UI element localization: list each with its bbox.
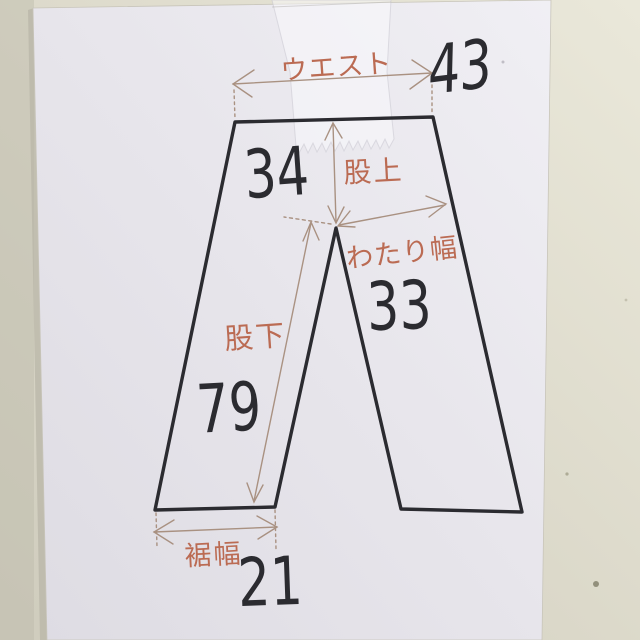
inseam-value: 79 xyxy=(195,369,264,450)
sketch-canvas: ウエスト 股上 わたり幅 股下 裾幅 43 34 33 79 21 xyxy=(0,0,640,640)
hem-width-value: 21 xyxy=(237,543,304,623)
desk-speck xyxy=(565,472,568,475)
desk-speck xyxy=(593,581,599,587)
rise-label: 股上 xyxy=(343,153,405,189)
inseam-label: 股下 xyxy=(223,318,287,356)
desk-speck xyxy=(625,299,628,302)
table-left-shade xyxy=(0,0,34,640)
rise-value: 34 xyxy=(241,133,311,215)
photo-of-measurement-sketch: ウエスト 股上 わたり幅 股下 裾幅 43 34 33 79 21 xyxy=(0,0,640,640)
paper-speck xyxy=(502,61,505,64)
thigh-width-value: 33 xyxy=(366,267,433,347)
hem-width-label: 裾幅 xyxy=(184,539,244,573)
waist-value: 43 xyxy=(423,26,497,111)
